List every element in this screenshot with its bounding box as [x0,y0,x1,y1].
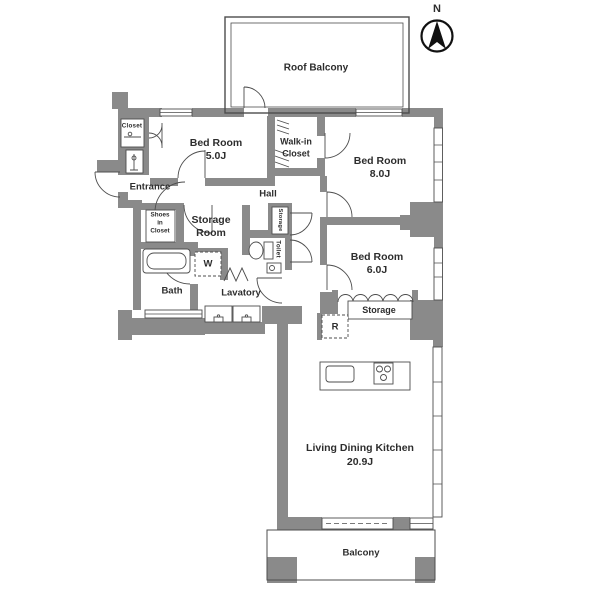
roof-balcony-door-icon [244,87,265,108]
walk-in-closet-door-icon [325,133,350,158]
shoes-in-closet-label: Shoes in Closet [150,212,169,237]
balcony-label: Balcony [343,548,380,559]
closet-label: Closet [122,123,142,130]
stove-icon [374,363,393,384]
storage-room-label: Storage Room [191,214,230,240]
hall-storage-label: Storage [277,209,283,232]
kitchen-counter-icon [320,362,410,390]
washbasin-icons [205,306,260,322]
bedroom8-door-icon [327,192,352,217]
storage-label: Storage [362,305,396,315]
lavatory-label: Lavatory [221,288,261,299]
living-dining-kitchen-label: Living Dining Kitchen 20.9J [306,441,414,469]
bedroom8-label: Bed Room 8.0J [354,155,407,181]
floor-plan: N Roof Balcony Bed Room 5.0J Closet Walk… [0,0,601,602]
compass-icon [422,21,453,52]
hall-label: Hall [259,189,276,200]
sink-icon [326,366,354,382]
closet-double-door-icon [149,123,162,148]
refrigerator-label: R [332,322,339,333]
walk-in-closet-label: Walk-in Closet [280,137,312,160]
bathtub-icon [143,249,190,273]
bedroom6-label: Bed Room 6.0J [351,251,404,277]
toilet-label: Toilet [275,240,282,258]
washing-machine-label: W [204,259,213,270]
roof-balcony-label: Roof Balcony [284,63,348,74]
north-arrow-icon [428,21,446,49]
bedroom5-label: Bed Room 5.0J [190,137,243,163]
floor-plan-drawing [0,0,601,602]
hall-closet-door-lower-icon [290,240,312,262]
entrance-door-icon [95,172,120,197]
north-label: N [433,3,441,15]
entrance-label: Entrance [130,182,171,193]
wic-hanger-icon [277,120,289,134]
bedroom6-door-icon [327,265,352,290]
hall-closet-door-upper-icon [290,213,312,235]
bath-label: Bath [161,286,182,297]
